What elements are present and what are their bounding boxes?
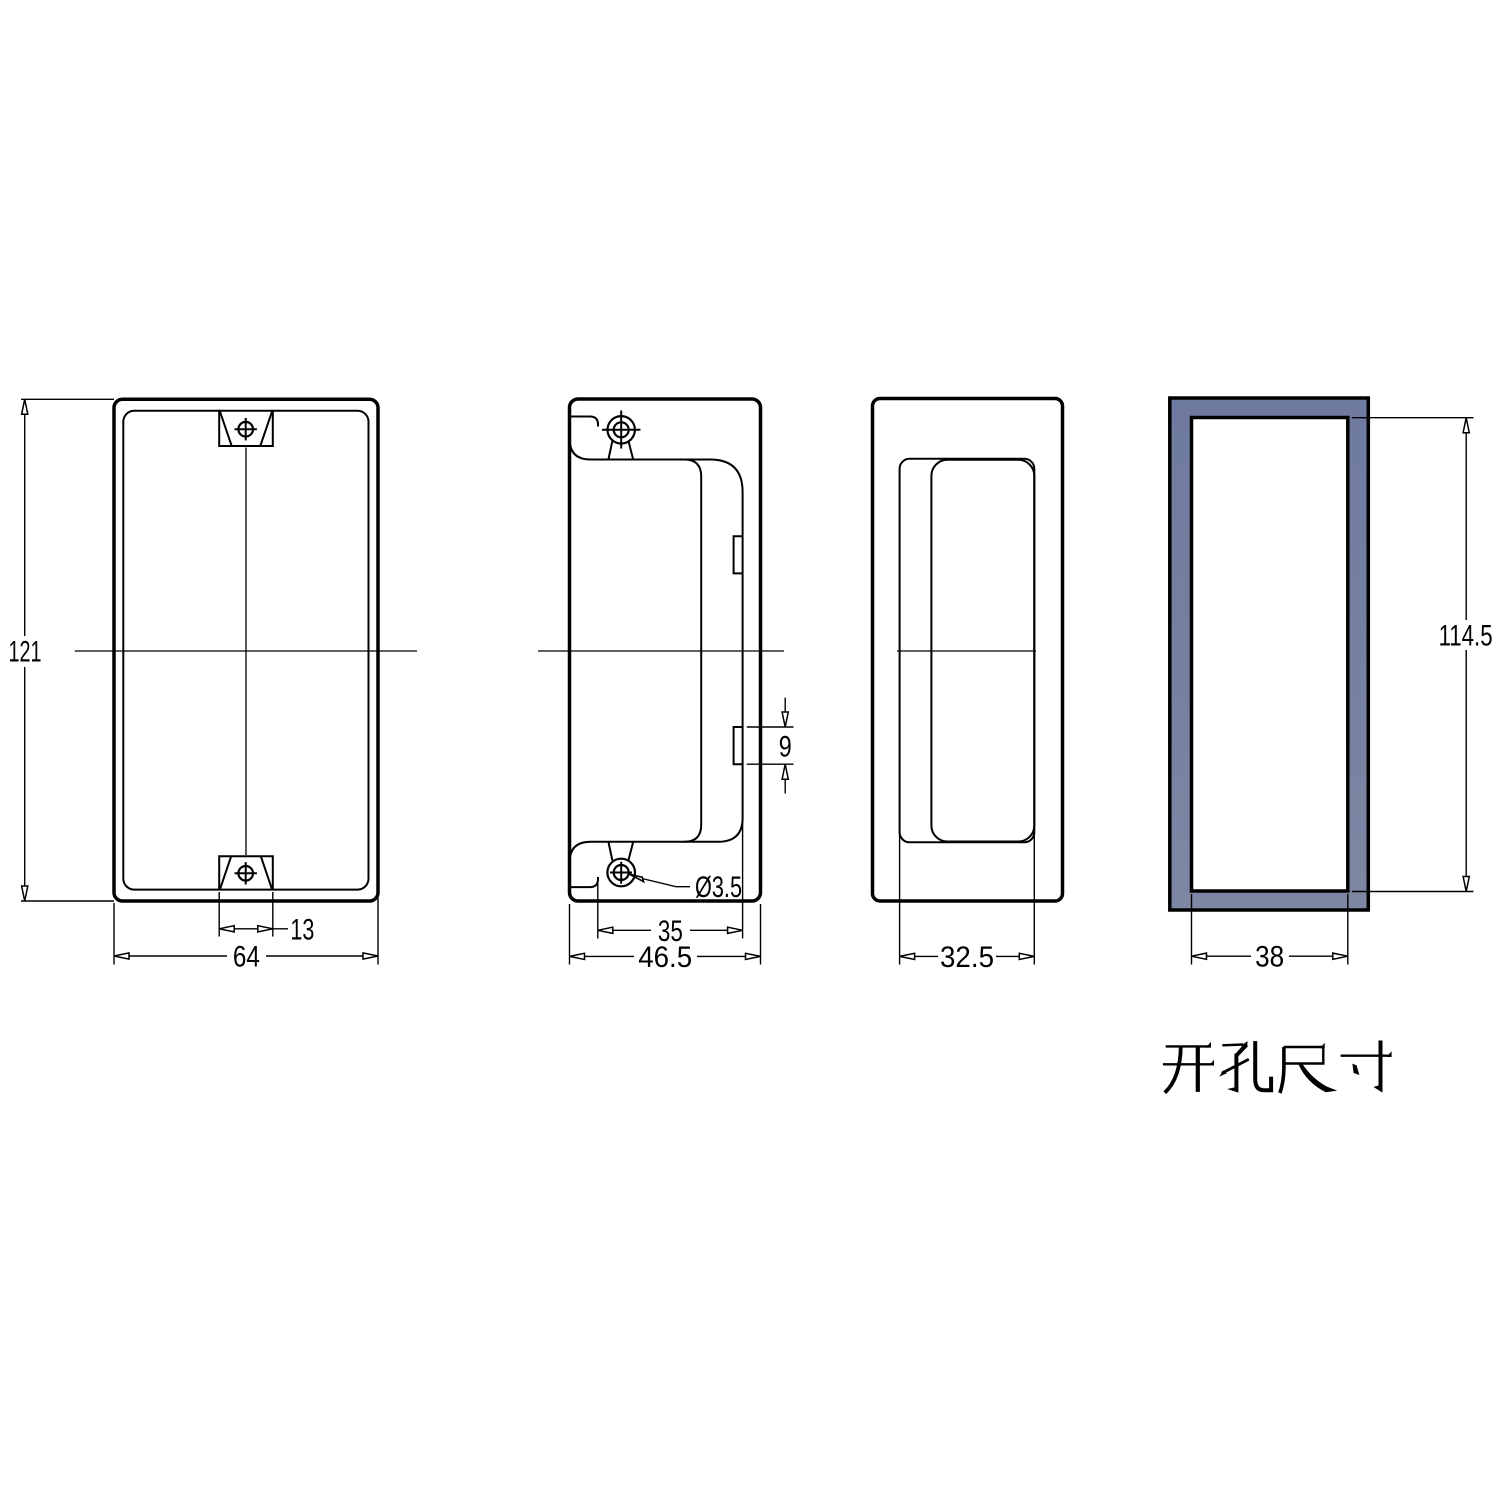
svg-text:38: 38 bbox=[1255, 941, 1284, 974]
svg-text:Ø3.5: Ø3.5 bbox=[695, 871, 742, 904]
svg-text:9: 9 bbox=[779, 731, 792, 764]
svg-text:32.5: 32.5 bbox=[940, 941, 994, 974]
svg-text:121: 121 bbox=[9, 636, 42, 669]
svg-text:46.5: 46.5 bbox=[638, 941, 692, 974]
svg-text:13: 13 bbox=[290, 913, 314, 946]
svg-text:64: 64 bbox=[233, 941, 260, 974]
svg-text:114.5: 114.5 bbox=[1439, 620, 1493, 653]
